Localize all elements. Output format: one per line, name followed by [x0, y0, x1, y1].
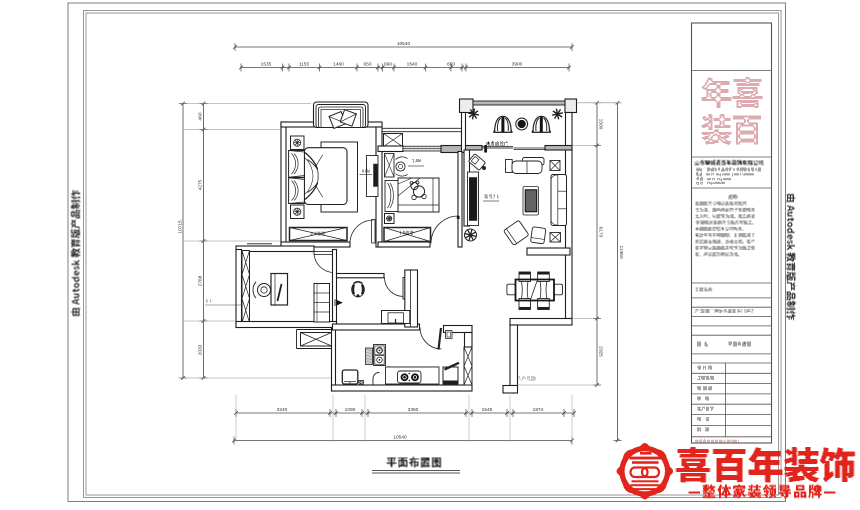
svg-text:6170: 6170: [598, 227, 604, 238]
svg-text:4275: 4275: [198, 179, 204, 190]
svg-text:1155: 1155: [299, 62, 310, 68]
svg-text:1090: 1090: [345, 407, 356, 413]
svg-text:1535: 1535: [261, 62, 272, 68]
svg-text:2768: 2768: [198, 275, 204, 286]
svg-text:10540: 10540: [393, 435, 407, 441]
svg-text:460: 460: [198, 112, 204, 120]
svg-text:1874: 1874: [533, 407, 544, 413]
svg-text:1460: 1460: [333, 62, 344, 68]
svg-text:3350: 3350: [408, 407, 419, 413]
svg-text:2033: 2033: [198, 344, 204, 355]
svg-text:10540: 10540: [397, 41, 411, 47]
svg-text:650: 650: [447, 62, 455, 68]
svg-text:2025: 2025: [598, 346, 604, 357]
svg-text:3900: 3900: [512, 62, 523, 68]
svg-text:3240: 3240: [277, 407, 288, 413]
svg-text:650: 650: [363, 62, 371, 68]
svg-text:1500: 1500: [598, 119, 604, 130]
svg-text:10715: 10715: [178, 220, 184, 234]
svg-text:1545: 1545: [482, 407, 493, 413]
svg-text:690: 690: [384, 62, 392, 68]
svg-text:11060: 11060: [618, 246, 624, 259]
svg-text:1540: 1540: [407, 62, 418, 68]
